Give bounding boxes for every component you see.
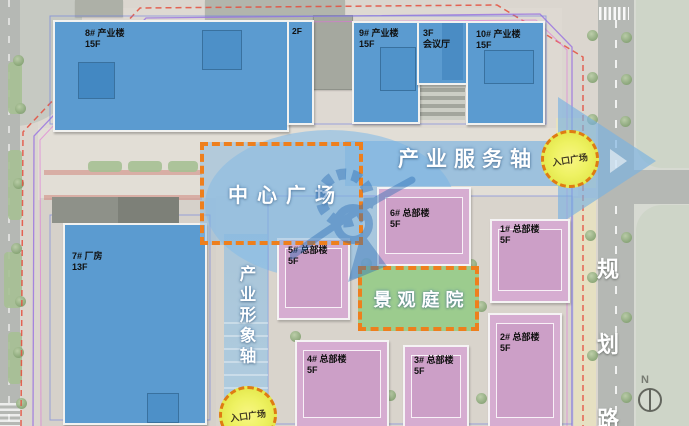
building-floors: 会议厅 xyxy=(423,39,450,50)
tree xyxy=(621,232,632,243)
building-label: 1# 总部楼 xyxy=(500,224,540,235)
central-plaza-zone: 中心广场 xyxy=(200,142,363,245)
roof-detail xyxy=(78,62,115,99)
north-label: N xyxy=(641,374,664,386)
building-floors: 15F xyxy=(85,39,125,50)
building-3-hq: 3# 总部楼 5F xyxy=(403,345,469,426)
north-compass: N xyxy=(636,374,664,419)
building-floors: 5F xyxy=(288,256,328,267)
tree xyxy=(620,116,631,127)
building-label: 5# 总部楼 xyxy=(288,245,328,256)
building-8-industrial: 8# 产业楼 15F xyxy=(53,20,289,132)
adjacent-structure xyxy=(75,0,123,17)
tree xyxy=(15,296,26,307)
building-label: 9# 产业楼 xyxy=(359,28,399,39)
building-label: 2F xyxy=(292,26,302,36)
roof-detail xyxy=(147,393,179,423)
entry-plaza-top: 入口广场 xyxy=(541,130,599,188)
building-6-hq: 6# 总部楼 5F xyxy=(377,187,471,266)
tree xyxy=(587,114,598,125)
landscape-courtyard-title: 景观庭院 xyxy=(374,286,470,312)
tree xyxy=(621,32,632,43)
building-label: 6# 总部楼 xyxy=(390,208,430,219)
east-grass-north xyxy=(636,0,689,168)
service-axis-title: 产业服务轴 xyxy=(398,143,538,173)
hedge-row xyxy=(168,161,198,172)
building-floors: 5F xyxy=(307,365,347,376)
east-cross-road xyxy=(632,170,689,204)
tree xyxy=(587,30,598,41)
tree xyxy=(476,393,487,404)
planning-road-title: 规 划 路 xyxy=(596,252,620,426)
building-3f-conference: 3F 会议厅 xyxy=(417,21,468,85)
hedge-row xyxy=(128,161,162,172)
road-char: 规 xyxy=(597,252,619,284)
tree xyxy=(587,72,598,83)
building-7-factory: 7# 厂房 13F xyxy=(63,223,207,425)
tree xyxy=(621,392,632,403)
tree xyxy=(15,103,26,114)
building-floors: 5F xyxy=(390,219,430,230)
crosswalk xyxy=(599,7,629,20)
building-floors: 15F xyxy=(359,39,399,50)
building-label: 8# 产业楼 xyxy=(85,28,125,39)
building-label: 3# 总部楼 xyxy=(414,355,454,366)
building-5-hq: 5# 总部楼 5F xyxy=(277,238,350,320)
road-char: 路 xyxy=(597,402,619,426)
building-1-hq: 1# 总部楼 5F xyxy=(490,219,570,303)
tree xyxy=(13,178,24,189)
compass-icon xyxy=(636,386,664,414)
roof-detail xyxy=(484,50,534,84)
entry-plaza-bottom-label: 入口广场 xyxy=(229,406,266,424)
landscape-courtyard-zone: 景观庭院 xyxy=(358,266,479,331)
lane-dashes xyxy=(615,20,617,168)
building-label: 7# 厂房 xyxy=(72,251,103,262)
image-axis-title: 产业形象轴 xyxy=(234,265,258,368)
building-floors: 5F xyxy=(500,235,540,246)
tree xyxy=(621,74,632,85)
site-plan: 8# 产业楼 15F 2F 9# 产业楼 15F 3F 会议厅 10# 产业楼 … xyxy=(0,0,689,426)
tree xyxy=(13,55,24,66)
building-2-hq: 2# 总部楼 5F xyxy=(488,313,562,426)
tree xyxy=(585,230,596,241)
planting-strip xyxy=(8,332,22,384)
roof-detail xyxy=(380,47,416,91)
tree xyxy=(621,312,632,323)
tree xyxy=(13,347,24,358)
building-label: 4# 总部楼 xyxy=(307,354,347,365)
building-2f-annex: 2F xyxy=(287,20,314,125)
building-label: 2# 总部楼 xyxy=(500,332,540,343)
building-10-industrial: 10# 产业楼 15F xyxy=(466,21,545,125)
podium-roof-dark xyxy=(118,197,179,223)
stair-paving xyxy=(419,84,465,120)
tree xyxy=(16,398,27,409)
building-label: 3F xyxy=(423,28,450,39)
hedge-row xyxy=(88,161,122,172)
roof-detail xyxy=(202,30,242,70)
building-4-hq: 4# 总部楼 5F xyxy=(295,340,389,426)
building-floors: 5F xyxy=(414,366,454,377)
central-plaza-title: 中心广场 xyxy=(228,179,344,208)
building-floors: 5F xyxy=(500,343,540,354)
road-char: 划 xyxy=(597,327,619,359)
building-floors: 13F xyxy=(72,262,103,273)
building-label: 10# 产业楼 xyxy=(476,29,521,40)
tree xyxy=(11,243,22,254)
adjacent-structure xyxy=(313,15,353,90)
building-floors: 15F xyxy=(476,40,521,51)
building-9-industrial: 9# 产业楼 15F xyxy=(352,21,420,124)
entry-plaza-top-label: 入口广场 xyxy=(551,150,589,168)
